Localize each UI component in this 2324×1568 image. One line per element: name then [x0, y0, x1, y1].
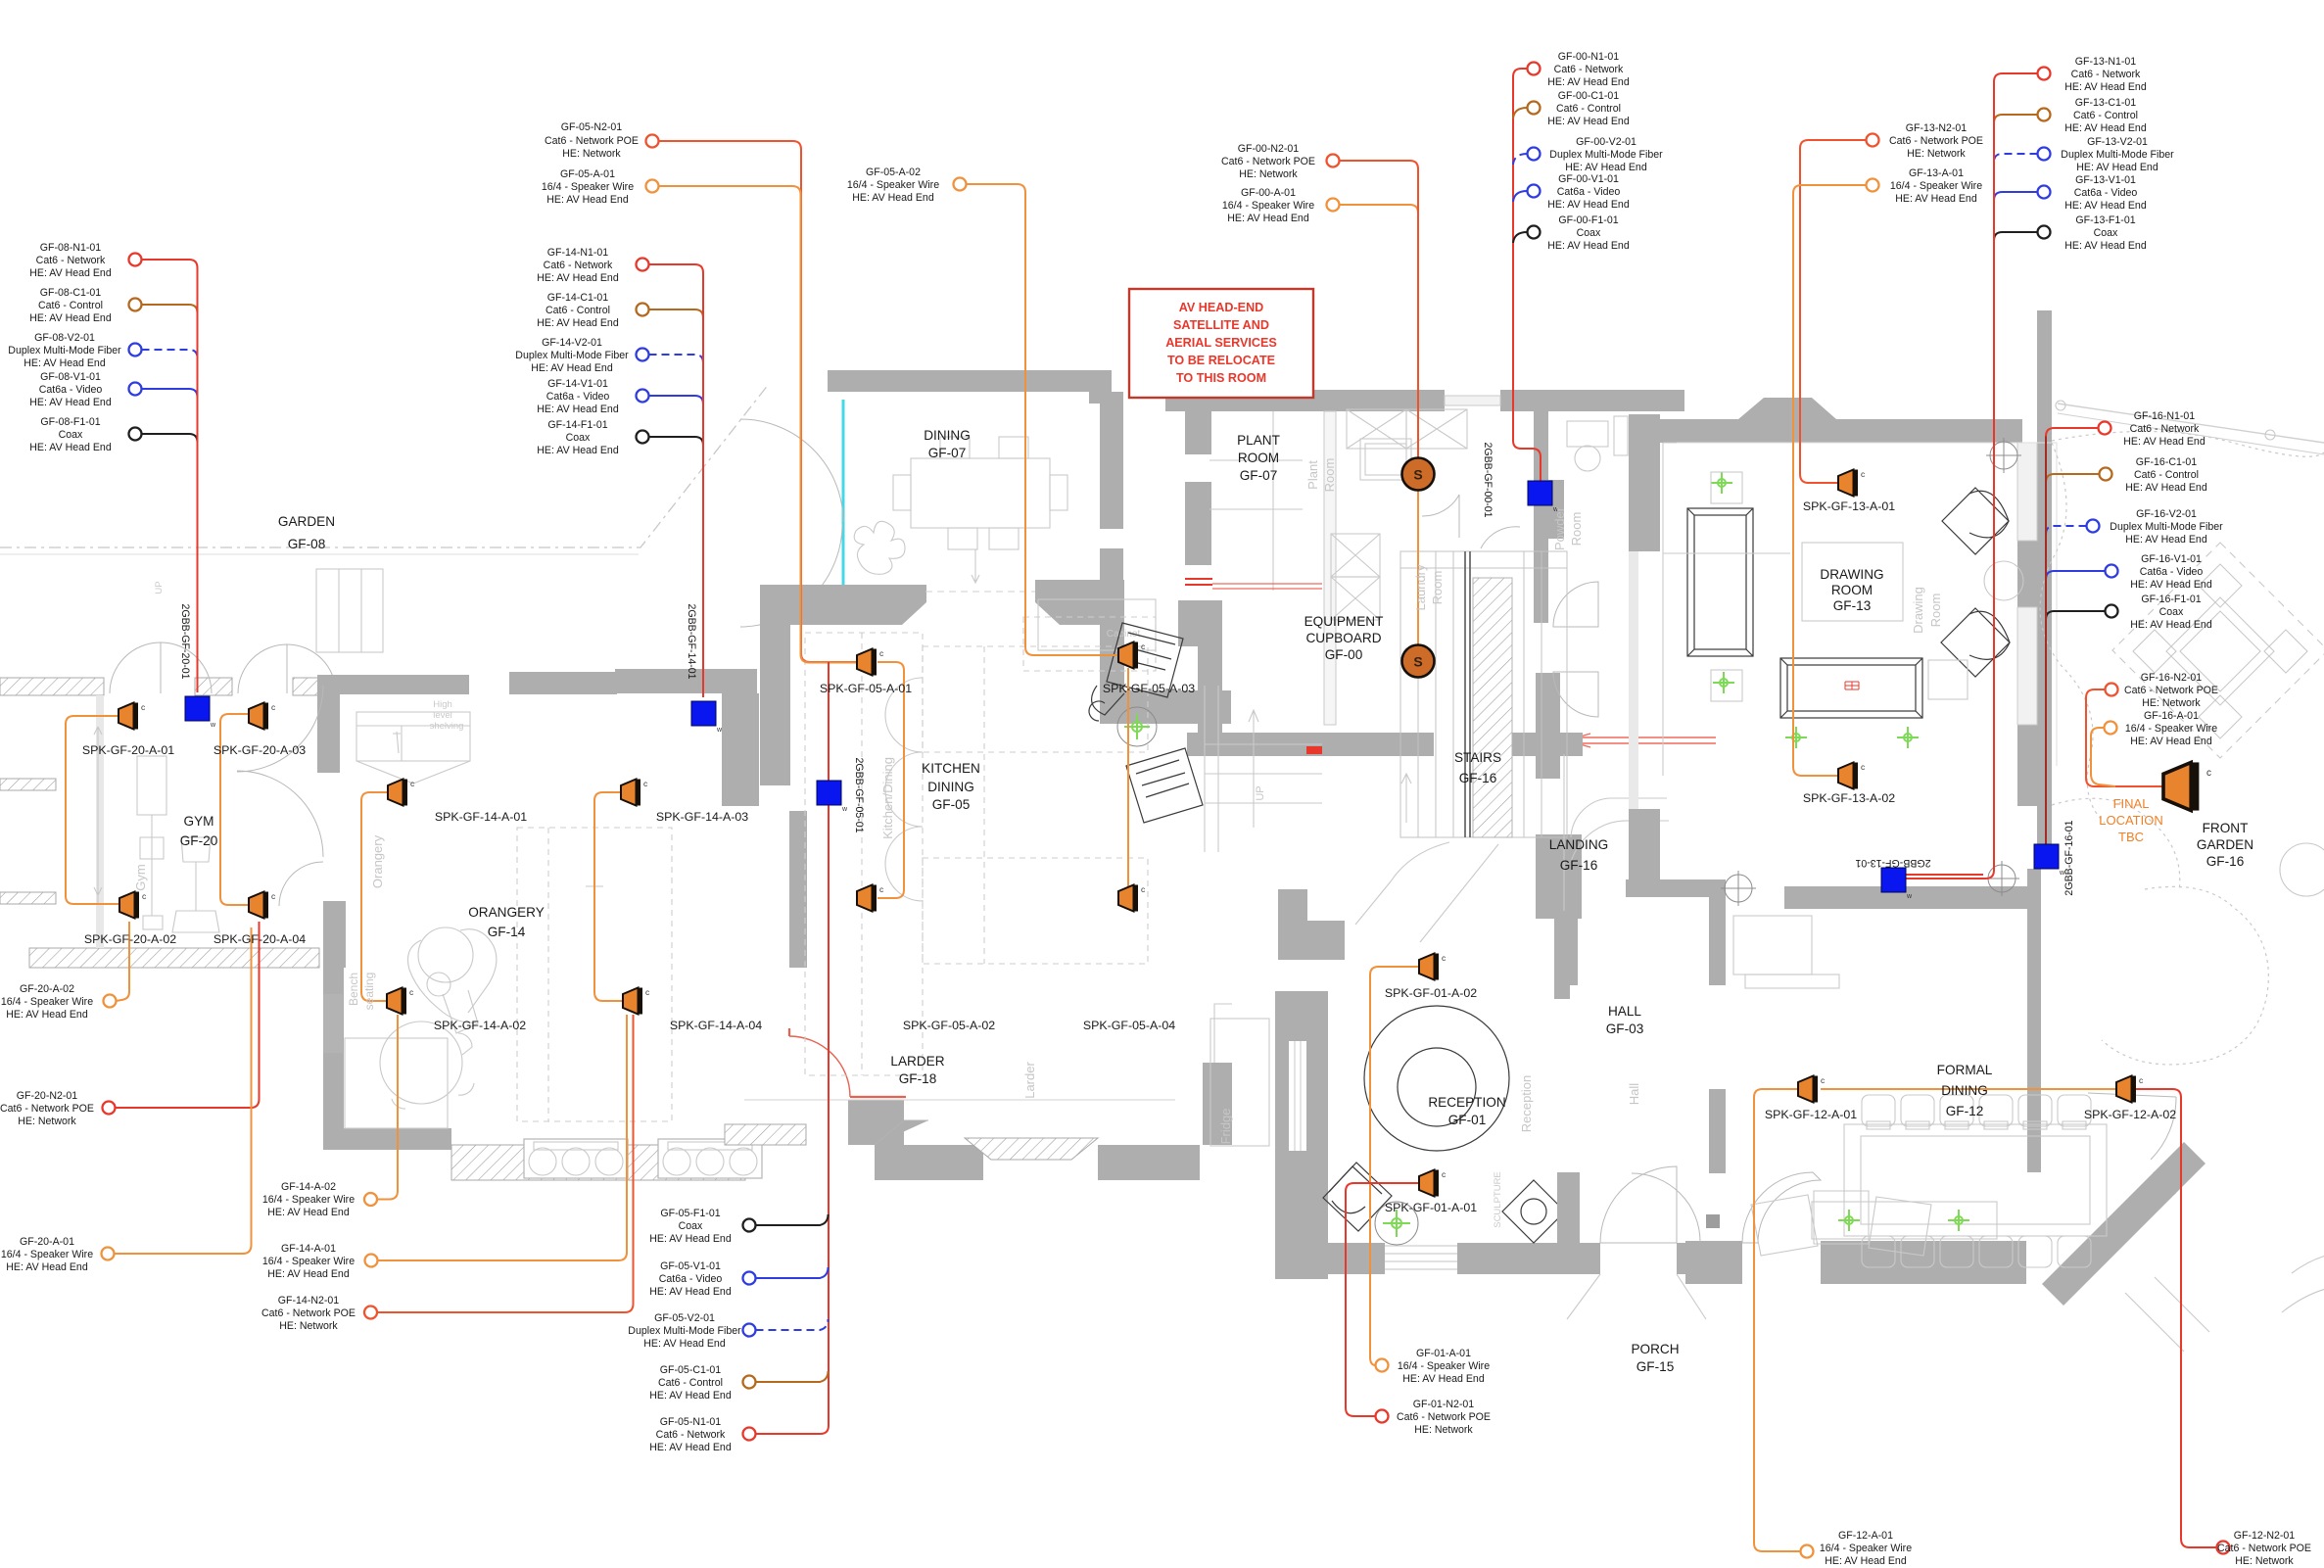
svg-text:SPK-GF-01-A-01: SPK-GF-01-A-01 — [1385, 1201, 1477, 1214]
svg-text:16/4 - Speaker Wire: 16/4 - Speaker Wire — [2125, 723, 2217, 735]
svg-text:HE: AV Head End: HE: AV Head End — [537, 404, 619, 415]
svg-text:HE: AV Head End: HE: AV Head End — [2064, 240, 2147, 252]
svg-text:GF-20-A-01: GF-20-A-01 — [20, 1236, 74, 1248]
svg-text:Plant: Plant — [1305, 460, 1320, 490]
svg-text:SPK-GF-14-A-02: SPK-GF-14-A-02 — [434, 1019, 526, 1032]
svg-text:HE: Network: HE: Network — [2235, 1555, 2294, 1567]
svg-text:GF-01-N2-01: GF-01-N2-01 — [1413, 1399, 1475, 1410]
svg-text:GF-14-N2-01: GF-14-N2-01 — [278, 1295, 340, 1307]
svg-text:GF-16: GF-16 — [1560, 858, 1598, 873]
svg-text:16/4 - Speaker Wire: 16/4 - Speaker Wire — [262, 1256, 355, 1267]
svg-text:HE: AV Head End: HE: AV Head End — [852, 192, 934, 204]
svg-text:level: level — [433, 710, 452, 721]
svg-text:HE: AV Head End: HE: AV Head End — [2130, 736, 2212, 747]
svg-text:GF-13-A-01: GF-13-A-01 — [1909, 167, 1964, 179]
svg-text:HE: AV Head End: HE: AV Head End — [267, 1268, 350, 1280]
svg-text:Cat6 - Network POE: Cat6 - Network POE — [1397, 1411, 1491, 1423]
svg-text:DINING: DINING — [1941, 1083, 1988, 1098]
svg-text:GF-03: GF-03 — [1606, 1022, 1644, 1036]
svg-text:Duplex Multi-Mode Fiber: Duplex Multi-Mode Fiber — [8, 345, 121, 356]
svg-text:GF-08-C1-01: GF-08-C1-01 — [40, 287, 102, 299]
svg-text:GF-18: GF-18 — [899, 1071, 937, 1086]
svg-text:GF-05-F1-01: GF-05-F1-01 — [660, 1208, 720, 1219]
svg-text:GARDEN: GARDEN — [278, 514, 335, 529]
svg-text:Cat6 - Network POE: Cat6 - Network POE — [0, 1103, 94, 1115]
svg-text:16/4 - Speaker Wire: 16/4 - Speaker Wire — [1, 1249, 93, 1260]
svg-text:Cat6 - Network POE: Cat6 - Network POE — [545, 135, 639, 147]
svg-text:Bench: Bench — [347, 973, 360, 1006]
svg-text:SPK-GF-05-A-04: SPK-GF-05-A-04 — [1083, 1019, 1175, 1032]
svg-text:HE: AV Head End: HE: AV Head End — [1547, 199, 1630, 211]
svg-text:ROOM: ROOM — [1238, 451, 1279, 465]
svg-text:SPK-GF-12-A-01: SPK-GF-12-A-01 — [1765, 1108, 1857, 1121]
svg-text:Cat6 - Control: Cat6 - Control — [1556, 103, 1621, 115]
svg-text:SPK-GF-13-A-02: SPK-GF-13-A-02 — [1803, 791, 1895, 805]
svg-text:HE: Network: HE: Network — [562, 148, 621, 160]
svg-text:shelving: shelving — [430, 721, 464, 732]
svg-text:HE: AV Head End: HE: AV Head End — [1547, 116, 1630, 127]
svg-text:TBC: TBC — [2118, 830, 2144, 844]
svg-text:HE: AV Head End: HE: AV Head End — [649, 1233, 732, 1245]
svg-text:2GBB-GF-20-01: 2GBB-GF-20-01 — [179, 603, 191, 679]
svg-text:KITCHEN: KITCHEN — [922, 761, 980, 776]
svg-text:HE: AV Head End: HE: AV Head End — [2125, 482, 2207, 494]
svg-text:16/4 - Speaker Wire: 16/4 - Speaker Wire — [1222, 200, 1314, 212]
svg-text:GF-08-V1-01: GF-08-V1-01 — [40, 371, 101, 383]
svg-text:GF-00-N1-01: GF-00-N1-01 — [1558, 51, 1620, 63]
svg-text:HE: AV Head End: HE: AV Head End — [2076, 162, 2158, 173]
svg-text:Cat6 - Control: Cat6 - Control — [38, 300, 103, 311]
svg-text:2GBB-GF-13-01: 2GBB-GF-13-01 — [1855, 857, 1930, 869]
svg-text:Cat6 - Control: Cat6 - Control — [545, 305, 610, 316]
svg-text:CUPBOARD: CUPBOARD — [1305, 631, 1381, 645]
svg-text:GF-13-F1-01: GF-13-F1-01 — [2075, 214, 2135, 226]
svg-text:HE: AV Head End: HE: AV Head End — [29, 397, 112, 408]
svg-text:Duplex Multi-Mode Fiber: Duplex Multi-Mode Fiber — [2061, 149, 2174, 161]
svg-text:GF-12-A-01: GF-12-A-01 — [1838, 1530, 1893, 1542]
svg-text:HE: AV Head End: HE: AV Head End — [1547, 240, 1630, 252]
svg-text:Cat6a - Video: Cat6a - Video — [2074, 187, 2138, 199]
svg-text:Coax: Coax — [2094, 227, 2118, 239]
svg-text:HE: AV Head End: HE: AV Head End — [6, 1261, 88, 1273]
svg-text:GF-14-C1-01: GF-14-C1-01 — [547, 292, 609, 304]
svg-text:GF-14-F1-01: GF-14-F1-01 — [547, 419, 607, 431]
svg-text:GF-16: GF-16 — [1459, 771, 1497, 785]
svg-text:GF-05-A-02: GF-05-A-02 — [866, 166, 921, 178]
svg-text:Coax: Coax — [566, 432, 591, 444]
svg-text:HE: AV Head End: HE: AV Head End — [537, 445, 619, 456]
svg-text:GF-05-N1-01: GF-05-N1-01 — [660, 1416, 722, 1428]
svg-text:EQUIPMENT: EQUIPMENT — [1304, 614, 1384, 629]
svg-text:Drawing: Drawing — [1911, 587, 1925, 634]
svg-text:Cat6 - Network POE: Cat6 - Network POE — [2217, 1543, 2311, 1554]
svg-text:GF-16: GF-16 — [2206, 854, 2245, 869]
svg-text:Cat6a - Video: Cat6a - Video — [1557, 186, 1621, 198]
svg-text:DINING: DINING — [927, 780, 974, 794]
svg-text:HE: AV Head End: HE: AV Head End — [1402, 1373, 1485, 1385]
svg-text:GF-13-N1-01: GF-13-N1-01 — [2075, 56, 2137, 68]
svg-text:Coax: Coax — [59, 429, 83, 441]
svg-text:SPK-GF-13-A-01: SPK-GF-13-A-01 — [1803, 499, 1895, 513]
svg-text:HE: AV Head End: HE: AV Head End — [1895, 193, 1977, 205]
svg-text:GF-12: GF-12 — [1946, 1104, 1984, 1118]
svg-text:2GBB-GF-14-01: 2GBB-GF-14-01 — [686, 603, 697, 679]
svg-text:LOCATION: LOCATION — [2099, 813, 2163, 828]
svg-text:Cat6a - Video: Cat6a - Video — [546, 391, 610, 403]
svg-text:GF-07: GF-07 — [928, 446, 967, 460]
svg-text:PORCH: PORCH — [1631, 1342, 1679, 1356]
svg-text:GF-20-A-02: GF-20-A-02 — [20, 983, 74, 995]
svg-text:Laundry: Laundry — [1413, 564, 1428, 610]
svg-text:GF-00-F1-01: GF-00-F1-01 — [1558, 214, 1618, 226]
svg-text:GF-13: GF-13 — [1833, 598, 1872, 613]
svg-text:Cat6a - Video: Cat6a - Video — [39, 384, 103, 396]
svg-text:GF-00-V2-01: GF-00-V2-01 — [1576, 136, 1636, 148]
svg-text:ROOM: ROOM — [1831, 583, 1873, 597]
svg-text:LANDING: LANDING — [1549, 837, 1608, 852]
svg-text:HE: AV Head End: HE: AV Head End — [531, 362, 613, 374]
svg-text:GF-08-N1-01: GF-08-N1-01 — [40, 242, 102, 254]
svg-text:HE: AV Head End: HE: AV Head End — [29, 312, 112, 324]
svg-text:SPK-GF-20-A-01: SPK-GF-20-A-01 — [82, 743, 174, 757]
svg-text:16/4 - Speaker Wire: 16/4 - Speaker Wire — [1398, 1360, 1490, 1372]
svg-text:SPK-GF-05-A-01: SPK-GF-05-A-01 — [820, 682, 912, 695]
svg-text:Cat6 - Network POE: Cat6 - Network POE — [1221, 156, 1315, 167]
svg-text:HE: AV Head End: HE: AV Head End — [649, 1442, 732, 1453]
svg-text:SPK-GF-05-A-03: SPK-GF-05-A-03 — [1103, 682, 1195, 695]
svg-text:GF-05-N2-01: GF-05-N2-01 — [561, 121, 623, 133]
svg-text:Room: Room — [1430, 571, 1445, 605]
svg-text:ORANGERY: ORANGERY — [468, 905, 545, 920]
svg-text:16/4 - Speaker Wire: 16/4 - Speaker Wire — [1, 996, 93, 1008]
svg-text:GF-01: GF-01 — [1448, 1113, 1487, 1127]
svg-text:GF-07: GF-07 — [1240, 468, 1278, 483]
svg-text:Duplex Multi-Mode Fiber: Duplex Multi-Mode Fiber — [515, 350, 629, 361]
svg-text:Reception: Reception — [1519, 1075, 1534, 1133]
svg-text:Cat6 - Control: Cat6 - Control — [2134, 469, 2199, 481]
svg-text:HE: AV Head End: HE: AV Head End — [1825, 1555, 1907, 1567]
svg-text:Cat6 - Network: Cat6 - Network — [36, 255, 106, 266]
svg-text:GF-00-C1-01: GF-00-C1-01 — [1558, 90, 1620, 102]
svg-text:Coax: Coax — [1577, 227, 1601, 239]
svg-text:HE: Network: HE: Network — [279, 1320, 338, 1332]
svg-text:HE: AV Head End: HE: AV Head End — [546, 194, 629, 206]
svg-text:SPK-GF-01-A-02: SPK-GF-01-A-02 — [1385, 986, 1477, 1000]
svg-text:SCULPTURE: SCULPTURE — [1493, 1171, 1503, 1228]
svg-text:Cat6 - Network: Cat6 - Network — [544, 260, 613, 271]
svg-text:GF-14-V2-01: GF-14-V2-01 — [542, 337, 602, 349]
svg-text:HE: AV Head End: HE: AV Head End — [267, 1207, 350, 1218]
svg-text:GF-16-V2-01: GF-16-V2-01 — [2136, 508, 2197, 520]
svg-text:TO BE RELOCATE: TO BE RELOCATE — [1167, 354, 1275, 367]
svg-text:Cat6a - Video: Cat6a - Video — [659, 1273, 723, 1285]
svg-text:GF-00: GF-00 — [1325, 647, 1363, 662]
svg-text:GF-16-V1-01: GF-16-V1-01 — [2141, 553, 2202, 565]
svg-text:SATELLITE AND: SATELLITE AND — [1173, 318, 1269, 332]
svg-text:HE: AV Head End: HE: AV Head End — [24, 357, 106, 369]
svg-text:High: High — [433, 699, 452, 710]
svg-text:Cat6 - Control: Cat6 - Control — [658, 1377, 723, 1389]
svg-text:GF-16-N1-01: GF-16-N1-01 — [2134, 410, 2196, 422]
svg-text:HE: AV Head End: HE: AV Head End — [643, 1338, 726, 1350]
svg-text:GF-01-A-01: GF-01-A-01 — [1416, 1348, 1471, 1359]
svg-text:HE: AV Head End: HE: AV Head End — [1227, 213, 1309, 224]
svg-text:GF-12-N2-01: GF-12-N2-01 — [2234, 1530, 2296, 1542]
svg-text:AV HEAD-END: AV HEAD-END — [1179, 301, 1264, 314]
svg-text:Duplex Multi-Mode Fiber: Duplex Multi-Mode Fiber — [1549, 149, 1663, 161]
svg-text:HE: AV Head End: HE: AV Head End — [2130, 579, 2212, 591]
svg-text:GF-13-V1-01: GF-13-V1-01 — [2075, 174, 2136, 186]
svg-text:Duplex Multi-Mode Fiber: Duplex Multi-Mode Fiber — [628, 1325, 741, 1337]
svg-text:16/4 - Speaker Wire: 16/4 - Speaker Wire — [1890, 180, 1982, 192]
svg-text:Kitchen/Dining: Kitchen/Dining — [880, 757, 895, 839]
svg-text:Room: Room — [1928, 594, 1943, 628]
svg-text:HE: AV Head End: HE: AV Head End — [2125, 534, 2207, 546]
svg-text:seating: seating — [362, 973, 376, 1011]
svg-text:FINAL: FINAL — [2113, 796, 2150, 811]
svg-text:Coax: Coax — [679, 1220, 703, 1232]
svg-text:GF-00-V1-01: GF-00-V1-01 — [1558, 173, 1619, 185]
svg-text:HE: AV Head End: HE: AV Head End — [2123, 436, 2205, 448]
svg-text:Cat6 - Network: Cat6 - Network — [2130, 423, 2200, 435]
svg-text:GF-14-V1-01: GF-14-V1-01 — [547, 378, 608, 390]
svg-text:HE: AV Head End: HE: AV Head End — [537, 317, 619, 329]
svg-text:HE: AV Head End: HE: AV Head End — [1547, 76, 1630, 88]
svg-text:HE: Network: HE: Network — [1239, 168, 1298, 180]
svg-text:2GBB-GF-05-01: 2GBB-GF-05-01 — [853, 757, 865, 832]
svg-text:HE: AV Head End: HE: AV Head End — [2064, 200, 2147, 212]
svg-text:FORMAL: FORMAL — [1937, 1063, 1993, 1077]
svg-text:SPK-GF-20-A-04: SPK-GF-20-A-04 — [213, 932, 306, 946]
svg-text:GF-14-A-01: GF-14-A-01 — [281, 1243, 336, 1255]
svg-text:Larder: Larder — [1022, 1062, 1037, 1099]
svg-text:Cat6 - Network: Cat6 - Network — [1554, 64, 1624, 75]
svg-text:HE: AV Head End: HE: AV Head End — [29, 442, 112, 453]
svg-text:GF-16-A-01: GF-16-A-01 — [2144, 710, 2199, 722]
svg-text:GF-05-A-01: GF-05-A-01 — [560, 168, 615, 180]
svg-text:GF-05-V2-01: GF-05-V2-01 — [654, 1312, 715, 1324]
svg-text:2GBB-GF-00-01: 2GBB-GF-00-01 — [1482, 442, 1494, 517]
svg-text:2GBB-GF-16-01: 2GBB-GF-16-01 — [2063, 820, 2075, 895]
svg-text:GF-20-N2-01: GF-20-N2-01 — [17, 1090, 78, 1102]
svg-text:GF-14-A-02: GF-14-A-02 — [281, 1181, 336, 1193]
svg-text:HE: AV Head End: HE: AV Head End — [649, 1286, 732, 1298]
svg-text:GARDEN: GARDEN — [2197, 837, 2253, 852]
svg-text:GF-14-N1-01: GF-14-N1-01 — [547, 247, 609, 259]
svg-text:GF-08-V2-01: GF-08-V2-01 — [34, 332, 95, 344]
svg-text:STAIRS: STAIRS — [1454, 750, 1501, 765]
svg-text:HE: AV Head End: HE: AV Head End — [2064, 122, 2147, 134]
svg-text:Orangery: Orangery — [370, 834, 385, 888]
svg-text:GF-16-F1-01: GF-16-F1-01 — [2141, 594, 2201, 605]
svg-text:HE: Network: HE: Network — [2142, 697, 2201, 709]
svg-text:Room: Room — [1322, 458, 1337, 493]
svg-text:16/4 - Speaker Wire: 16/4 - Speaker Wire — [847, 179, 939, 191]
svg-text:GF-13-V2-01: GF-13-V2-01 — [2087, 136, 2148, 148]
svg-text:GF-05: GF-05 — [932, 797, 971, 812]
svg-text:Coax: Coax — [2159, 606, 2184, 618]
svg-text:RECEPTION: RECEPTION — [1428, 1095, 1505, 1110]
svg-text:TO THIS ROOM: TO THIS ROOM — [1176, 371, 1266, 385]
svg-text:HE: AV Head End: HE: AV Head End — [6, 1009, 88, 1021]
svg-text:GF-16-N2-01: GF-16-N2-01 — [2141, 672, 2203, 684]
svg-text:GF-14: GF-14 — [488, 925, 526, 939]
svg-text:SPK-GF-14-A-04: SPK-GF-14-A-04 — [670, 1019, 762, 1032]
svg-text:HE: Network: HE: Network — [1414, 1424, 1473, 1436]
svg-text:GF-00-A-01: GF-00-A-01 — [1241, 187, 1296, 199]
svg-text:GF-20: GF-20 — [180, 833, 218, 848]
svg-text:HE: AV Head End: HE: AV Head End — [2064, 81, 2147, 93]
svg-text:SPK-GF-20-A-02: SPK-GF-20-A-02 — [84, 932, 176, 946]
svg-text:HE: AV Head End: HE: AV Head End — [649, 1390, 732, 1402]
svg-text:GF-05-V1-01: GF-05-V1-01 — [660, 1260, 721, 1272]
svg-text:16/4 - Speaker Wire: 16/4 - Speaker Wire — [1820, 1543, 1912, 1554]
svg-text:Gym: Gym — [133, 864, 148, 890]
svg-text:GF-05-C1-01: GF-05-C1-01 — [660, 1364, 722, 1376]
svg-text:Cat6 - Network: Cat6 - Network — [2071, 69, 2141, 80]
svg-text:Room: Room — [1569, 512, 1584, 546]
svg-text:SPK-GF-05-A-02: SPK-GF-05-A-02 — [903, 1019, 995, 1032]
svg-text:GF-16-C1-01: GF-16-C1-01 — [2136, 456, 2198, 468]
svg-text:SPK-GF-20-A-03: SPK-GF-20-A-03 — [213, 743, 306, 757]
svg-text:AERIAL SERVICES: AERIAL SERVICES — [1165, 336, 1277, 350]
svg-text:SPK-GF-14-A-03: SPK-GF-14-A-03 — [656, 810, 748, 824]
svg-text:c: c — [2206, 768, 2211, 779]
svg-text:UP: UP — [154, 581, 165, 594]
svg-text:HE: AV Head End: HE: AV Head End — [29, 267, 112, 279]
svg-text:Cat6 - Network POE: Cat6 - Network POE — [1889, 135, 1983, 147]
svg-text:DINING: DINING — [924, 428, 971, 443]
svg-text:HE: Network: HE: Network — [1907, 148, 1966, 160]
svg-text:Cat6a - Video: Cat6a - Video — [2140, 566, 2204, 578]
svg-text:Cat6 - Network: Cat6 - Network — [656, 1429, 726, 1441]
svg-text:Cat6 - Network POE: Cat6 - Network POE — [261, 1307, 356, 1319]
svg-text:SPK-GF-12-A-02: SPK-GF-12-A-02 — [2084, 1108, 2176, 1121]
svg-text:DRAWING: DRAWING — [1820, 567, 1883, 582]
svg-text:SPK-GF-14-A-01: SPK-GF-14-A-01 — [435, 810, 527, 824]
svg-text:FRONT: FRONT — [2203, 821, 2249, 835]
svg-text:Duplex Multi-Mode Fiber: Duplex Multi-Mode Fiber — [2110, 521, 2223, 533]
svg-text:16/4 - Speaker Wire: 16/4 - Speaker Wire — [262, 1194, 355, 1206]
svg-text:GF-13-N2-01: GF-13-N2-01 — [1906, 122, 1968, 134]
svg-text:Cat6 - Control: Cat6 - Control — [2073, 110, 2138, 121]
svg-text:Powder: Powder — [1552, 506, 1567, 550]
svg-text:GYM: GYM — [184, 814, 214, 829]
svg-text:GF-08-F1-01: GF-08-F1-01 — [40, 416, 100, 428]
svg-text:16/4 - Speaker Wire: 16/4 - Speaker Wire — [542, 181, 634, 193]
svg-text:HALL: HALL — [1608, 1004, 1641, 1019]
svg-text:GF-08: GF-08 — [288, 537, 326, 551]
svg-text:HE: AV Head End: HE: AV Head End — [1565, 162, 1647, 173]
svg-text:HE: AV Head End: HE: AV Head End — [537, 272, 619, 284]
svg-text:GF-15: GF-15 — [1636, 1359, 1675, 1374]
svg-text:GF-13-C1-01: GF-13-C1-01 — [2075, 97, 2137, 109]
svg-text:PLANT: PLANT — [1237, 433, 1280, 448]
svg-text:Fridge: Fridge — [1218, 1109, 1233, 1145]
svg-text:UP: UP — [1255, 785, 1266, 800]
svg-text:LARDER: LARDER — [890, 1054, 944, 1069]
svg-text:Cat6 - Network POE: Cat6 - Network POE — [2124, 685, 2218, 696]
svg-text:HE: Network: HE: Network — [18, 1116, 76, 1127]
svg-text:HE: AV Head End: HE: AV Head End — [2130, 619, 2212, 631]
svg-text:GF-00-N2-01: GF-00-N2-01 — [1238, 143, 1300, 155]
svg-text:Hall: Hall — [1627, 1083, 1641, 1106]
